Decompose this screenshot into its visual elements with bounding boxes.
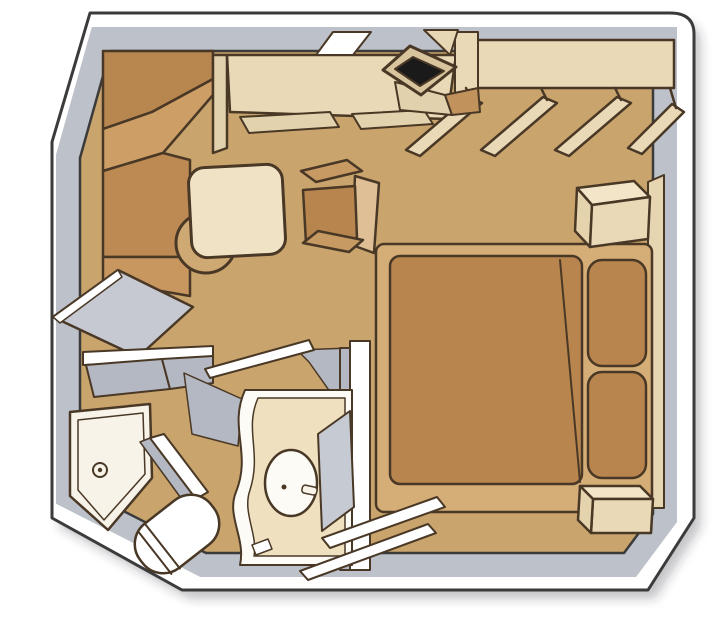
bed-blanket xyxy=(390,256,582,484)
floorplan-svg xyxy=(0,0,726,619)
floorplan-shapes xyxy=(52,13,701,599)
nightstand-lower-front xyxy=(591,499,653,533)
closet-shelf xyxy=(455,40,674,88)
shower-drain-dot xyxy=(98,468,102,472)
nightstand-upper-front xyxy=(590,197,650,247)
sink-basin xyxy=(265,450,317,516)
table-top xyxy=(188,164,287,259)
pillow-1 xyxy=(588,260,646,366)
desk-side-panel xyxy=(213,55,227,153)
floorplan-page xyxy=(0,0,726,619)
pillow-2 xyxy=(588,372,646,478)
bath-wall-top-face xyxy=(86,359,170,397)
sink-faucet-dot xyxy=(282,485,287,490)
